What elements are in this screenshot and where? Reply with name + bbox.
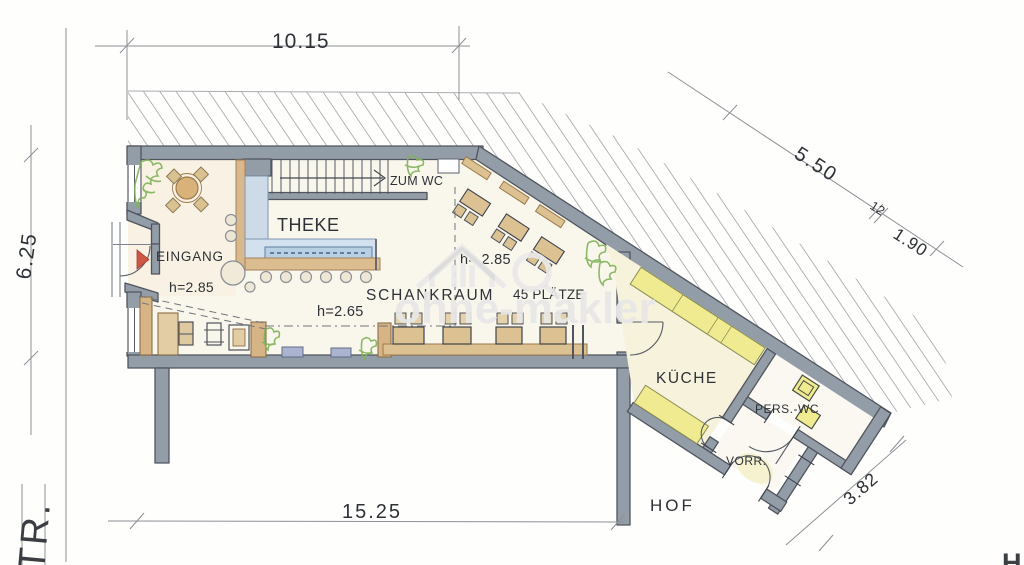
svg-text:TR.: TR. [11, 499, 59, 565]
svg-text:KÜCHE: KÜCHE [656, 369, 718, 387]
svg-text:VORR.: VORR. [726, 454, 767, 468]
svg-text:ohne-makler: ohne-makler [394, 284, 656, 333]
svg-text:EINGANG: EINGANG [156, 249, 224, 264]
svg-text:h=2.65: h=2.65 [317, 304, 364, 320]
svg-text:h=2.85: h=2.85 [169, 279, 214, 295]
svg-text:10.15: 10.15 [272, 30, 330, 53]
svg-text:PERS.-WC: PERS.-WC [755, 402, 819, 416]
svg-text:HOF: HOF [650, 496, 695, 515]
svg-text:15.25: 15.25 [342, 501, 402, 523]
svg-text:THEKE: THEKE [277, 215, 340, 235]
svg-text:H: H [1002, 548, 1022, 565]
svg-text:ZUM WC: ZUM WC [390, 174, 443, 188]
